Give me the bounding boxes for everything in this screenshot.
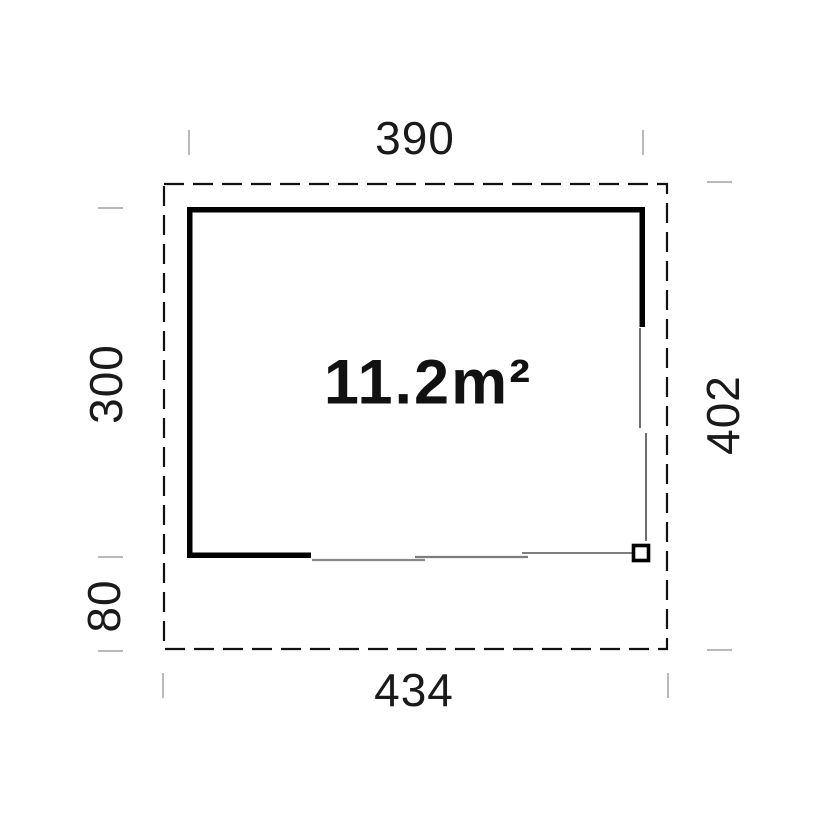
floor-area-label: 11.2m²	[324, 352, 532, 415]
dimension-label-bottom-width: 434	[374, 667, 454, 713]
floor-plan-canvas: 390 300 80 402 434 11.2m²	[0, 0, 828, 828]
wall-right-top-segment	[640, 207, 646, 327]
wall-left	[187, 207, 193, 558]
dimension-label-right-height: 402	[700, 375, 746, 455]
dimension-label-left-height: 300	[83, 344, 129, 424]
dimension-label-left-offset: 80	[81, 579, 127, 632]
wall-bottom-left-segment	[187, 553, 311, 559]
dimension-label-top-width: 390	[375, 115, 455, 161]
wall-top	[187, 207, 645, 213]
corner-post-marker	[634, 546, 649, 561]
